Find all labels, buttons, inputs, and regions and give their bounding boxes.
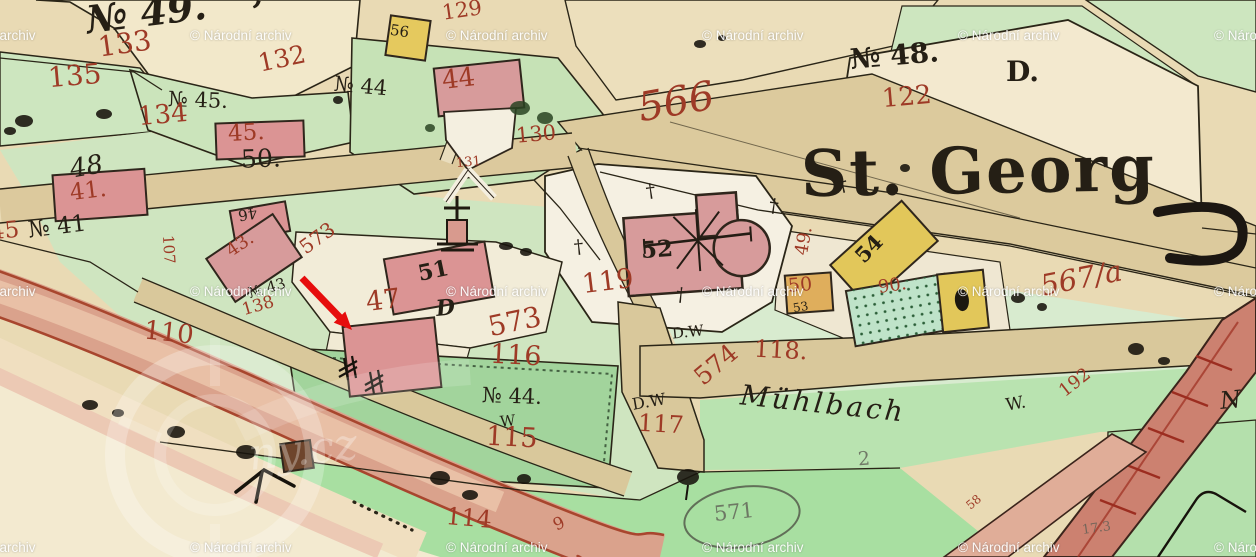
map-artwork: ny.cz	[0, 0, 1256, 557]
cadastral-map-canvas[interactable]: ny.cz № 49.’№ 45.50.№ 44№ 4148№ 48.D.St.…	[0, 0, 1256, 557]
